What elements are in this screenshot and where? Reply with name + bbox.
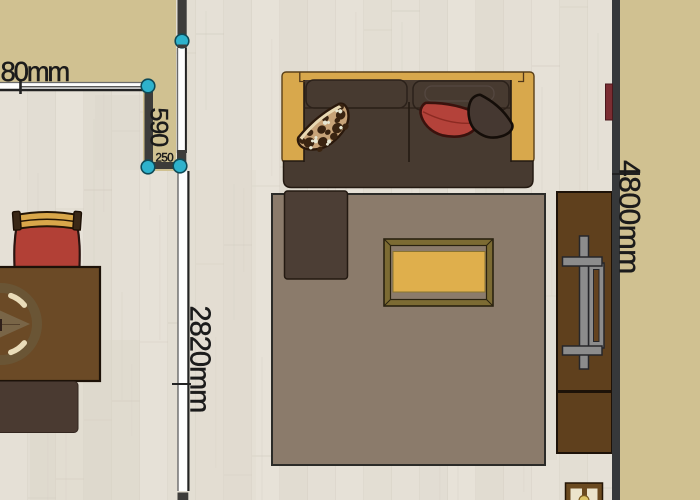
svg-text:2820mm: 2820mm: [184, 306, 216, 413]
svg-text:4800mm: 4800mm: [613, 160, 646, 274]
svg-text:250: 250: [156, 153, 174, 165]
svg-text:80mm: 80mm: [1, 56, 70, 87]
svg-text:590: 590: [145, 108, 173, 147]
